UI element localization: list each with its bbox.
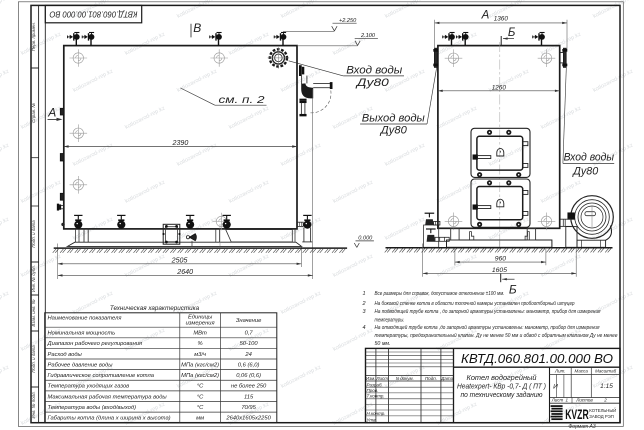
svg-text:КОТЕЛЬНЫЙ: КОТЕЛЬНЫЙ <box>589 408 616 413</box>
svg-text:Дата: Дата <box>440 376 453 381</box>
svg-text:не более 250: не более 250 <box>231 384 267 390</box>
svg-text:Рабочее давление воды: Рабочее давление воды <box>48 362 114 368</box>
svg-text:2: 2 <box>362 301 366 307</box>
svg-text:Котел водогрейный: Котел водогрейный <box>467 373 538 382</box>
svg-text:Вход воды: Вход воды <box>346 65 402 77</box>
svg-text:На отводящей трубе котла ,до з: На отводящей трубе котла ,до запорной ар… <box>375 324 600 331</box>
svg-text:1605: 1605 <box>492 267 507 274</box>
svg-text:В: В <box>193 21 201 35</box>
svg-text:Т.контр.: Т.контр. <box>367 394 385 399</box>
svg-text:0,7: 0,7 <box>245 331 254 337</box>
svg-text:м3/ч: м3/ч <box>194 352 206 358</box>
svg-text:Инв. № подл.: Инв. № подл. <box>31 391 36 418</box>
svg-text:1:15: 1:15 <box>600 383 613 390</box>
svg-text:°С: °С <box>197 384 204 390</box>
svg-text:Листов: Листов <box>575 398 593 403</box>
svg-text:115: 115 <box>244 394 254 400</box>
svg-text:2505: 2505 <box>171 256 188 264</box>
svg-text:2390: 2390 <box>172 139 189 147</box>
svg-text:Лист: Лист <box>375 376 388 381</box>
svg-text:Максимальная рабочая температу: Максимальная рабочая температура воды <box>48 394 168 400</box>
svg-text:КВТД.060.801.00.000 ВО: КВТД.060.801.00.000 ВО <box>50 9 138 18</box>
svg-text:измерения: измерения <box>186 321 215 327</box>
svg-text:Изм.: Изм. <box>366 376 376 381</box>
svg-text:4: 4 <box>363 325 366 331</box>
svg-text:КВТД.060.801.00.000 ВО: КВТД.060.801.00.000 ВО <box>461 351 613 366</box>
svg-text:см. п. 2: см. п. 2 <box>219 94 265 106</box>
svg-text:А: А <box>481 9 490 21</box>
svg-text:И: И <box>553 383 558 390</box>
svg-text:Все размеры для справок, допус: Все размеры для справок, допустимое откл… <box>375 291 505 297</box>
svg-text:Лит.: Лит. <box>554 369 566 374</box>
svg-text:Номинальная мощность: Номинальная мощность <box>48 331 116 337</box>
svg-text:Формат А3: Формат А3 <box>568 424 596 430</box>
svg-text:2.100: 2.100 <box>360 33 376 39</box>
svg-text:МВт: МВт <box>193 331 207 337</box>
svg-text:А: А <box>47 106 56 120</box>
svg-text:Техническая характеристика: Техническая характеристика <box>110 305 200 312</box>
svg-text:1: 1 <box>363 291 366 297</box>
svg-text:МПа (кгс/см2): МПа (кгс/см2) <box>181 362 219 368</box>
svg-text:Температура воды (вход/выход): Температура воды (вход/выход) <box>48 405 137 411</box>
svg-text:%: % <box>198 341 203 347</box>
svg-text:Расход воды: Расход воды <box>48 352 83 358</box>
svg-text:Масса: Масса <box>575 369 589 374</box>
svg-text:0,6 (6,0): 0,6 (6,0) <box>238 362 260 368</box>
svg-text:Б: Б <box>508 27 516 39</box>
svg-text:МПа (кгс/см2): МПа (кгс/см2) <box>181 373 219 379</box>
svg-text:Подп. и дата: Подп. и дата <box>31 220 36 248</box>
svg-text:На боковой стенке котла в обла: На боковой стенке котла в области топочн… <box>375 300 575 307</box>
svg-text:Ду80: Ду80 <box>571 166 599 178</box>
svg-text:Подп. и дата: Подп. и дата <box>31 345 36 373</box>
svg-text:Гидравлическое сопротивление к: Гидравлическое сопротивление котла <box>48 373 155 379</box>
svg-text:по техническому заданию: по техническому заданию <box>461 390 543 399</box>
svg-text:Вход воды: Вход воды <box>564 152 615 164</box>
svg-text:KVZR: KVZR <box>565 406 589 422</box>
svg-text:Пров.: Пров. <box>367 388 379 393</box>
svg-text:+2.250: +2.250 <box>339 18 357 24</box>
svg-text:Подп.: Подп. <box>425 376 437 381</box>
svg-text:Ду80: Ду80 <box>379 125 408 137</box>
svg-text:Б: Б <box>509 283 517 297</box>
svg-text:Масштаб: Масштаб <box>595 369 616 374</box>
svg-text:мм: мм <box>196 416 204 422</box>
svg-text:1260: 1260 <box>492 84 507 91</box>
svg-text:70/95: 70/95 <box>241 405 256 411</box>
svg-text:24: 24 <box>244 352 251 358</box>
svg-text:Утв.: Утв. <box>367 417 377 422</box>
svg-text:На подводящей трубе котла ,: На подводящей трубе котла , до запорной … <box>375 308 601 315</box>
svg-text:Разраб.: Разраб. <box>367 382 383 387</box>
svg-text:50 мм.: 50 мм. <box>375 341 391 347</box>
svg-text:0,06 (0,6): 0,06 (0,6) <box>236 373 261 379</box>
svg-text:1360: 1360 <box>494 15 509 22</box>
svg-text:Диапазон рабочего регулировани: Диапазон рабочего регулирования <box>47 341 143 347</box>
svg-text:50-100: 50-100 <box>240 341 259 347</box>
svg-text:Температура уходящих газов: Температура уходящих газов <box>48 384 130 390</box>
svg-text:N докум.: N докум. <box>396 376 414 381</box>
svg-text:2: 2 <box>603 398 607 403</box>
svg-text:Единицы: Единицы <box>188 314 213 320</box>
svg-text:Наименование показателя: Наименование показателя <box>48 316 122 322</box>
svg-text:2640: 2640 <box>176 268 193 276</box>
svg-text:Лист: Лист <box>551 398 564 403</box>
svg-text:Габариты котла (длина х ширина: Габариты котла (длина х ширина х высота) <box>48 416 171 422</box>
svg-text:Инв. № дубл.: Инв. № дубл. <box>31 265 36 292</box>
svg-text:Перв. примен.: Перв. примен. <box>31 22 36 51</box>
svg-text:Выход воды: Выход воды <box>362 113 425 125</box>
svg-text:°С: °С <box>197 405 204 411</box>
svg-text:температуры.: температуры. <box>375 317 405 323</box>
svg-text:Значение: Значение <box>236 318 262 324</box>
svg-text:0.000: 0.000 <box>358 236 373 242</box>
svg-text:2640х1605х2250: 2640х1605х2250 <box>225 416 271 422</box>
svg-text:Н.контр.: Н.контр. <box>367 411 386 416</box>
svg-text:960: 960 <box>495 256 507 263</box>
svg-text:Ду80: Ду80 <box>354 77 390 89</box>
svg-text:Взам. инв. №: Взам. инв. № <box>31 299 36 326</box>
svg-text:Справ. №: Справ. № <box>31 103 36 123</box>
svg-text:°С: °С <box>197 394 204 400</box>
svg-text:ЗАВОД РЭП: ЗАВОД РЭП <box>589 414 614 419</box>
svg-text:температуры, предохранительный: температуры, предохранительный клапан. Д… <box>375 332 618 339</box>
